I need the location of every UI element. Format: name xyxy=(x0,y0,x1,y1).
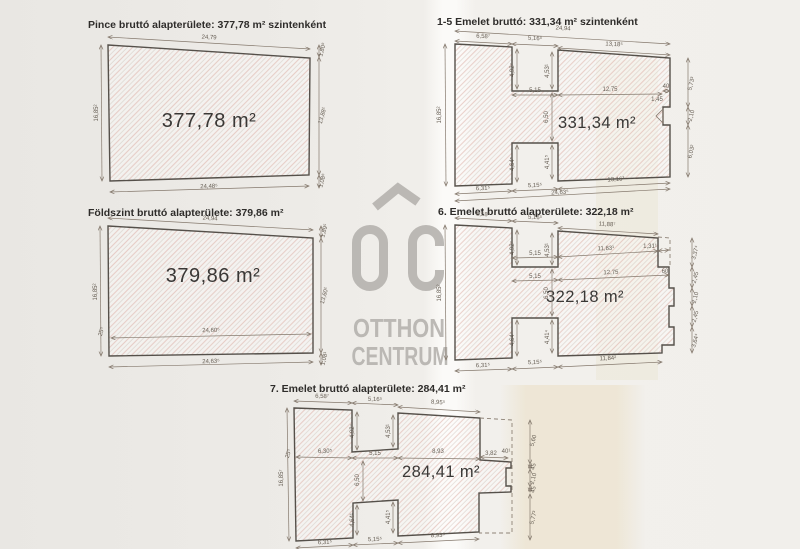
plan-pince-area: 377,78 m² xyxy=(162,110,257,132)
dim-line xyxy=(398,539,479,543)
dim-label: 4,92⁴ xyxy=(509,62,516,77)
dim-label: 4,41⁵ xyxy=(544,154,551,169)
scanned-floorplan-page: OTTHON CENTRUM Pince bruttó alapterülete… xyxy=(0,0,800,549)
dim-label: 5,15⁵ xyxy=(528,359,543,367)
plan-emelet-1-5-area: 331,34 m² xyxy=(558,114,636,132)
dim-label: 12,75 xyxy=(602,87,618,93)
dim-label: 6,31⁵ xyxy=(476,185,491,193)
dim-label: 8,93⁵ xyxy=(431,532,446,540)
dim-line xyxy=(558,183,670,189)
dim-label: 2,10 xyxy=(688,109,697,122)
plan-emelet-6: 6. Emelet bruttó alapterülete: 322,18 m²… xyxy=(437,206,701,371)
dim-label: 13,88¹ xyxy=(318,107,328,125)
dim-label: 6,03² xyxy=(687,144,696,159)
dim-line xyxy=(445,225,446,360)
dim-label: 6,50 xyxy=(355,474,361,486)
dim-line xyxy=(512,257,558,258)
dim-label: 24,94 xyxy=(202,216,218,223)
dim-label: 6,50 xyxy=(544,287,550,299)
dim-label: 5,15 xyxy=(529,274,541,280)
dim-label: 2,45 xyxy=(692,271,701,284)
dim-label: 13,18⁵ xyxy=(605,40,623,48)
dim-label: 16,85² xyxy=(437,284,443,301)
dim-label: 11,88⁷ xyxy=(599,221,616,229)
dim-label: 5,16⁵ xyxy=(528,214,543,222)
dim-line xyxy=(294,401,352,403)
dim-label: 16,85² xyxy=(94,104,100,121)
plan-emelet-7-title: 7. Emelet bruttó alapterülete: 284,41 m² xyxy=(270,383,466,395)
dim-label: 4,64¹ xyxy=(350,513,356,527)
dim-line xyxy=(287,408,289,541)
dim-line xyxy=(558,362,662,367)
dim-label: 6,31⁵ xyxy=(318,539,333,547)
dim-label: 3,82 xyxy=(485,451,497,457)
dim-label: 45 xyxy=(530,485,538,494)
dim-line xyxy=(512,221,558,223)
dim-label: 16,85² xyxy=(93,283,99,300)
floorplan-drawing: OTTHON CENTRUM Pince bruttó alapterülete… xyxy=(0,0,800,549)
plan-emelet-6-area: 322,18 m² xyxy=(546,288,624,306)
dim-label: 6,30⁵ xyxy=(318,448,333,455)
dim-line xyxy=(455,369,512,371)
dim-line xyxy=(480,457,508,458)
dim-label: 8,93 xyxy=(432,449,444,455)
dim-label: 8,95⁵ xyxy=(431,399,446,407)
dim-label: 4,41⁴ xyxy=(544,329,551,344)
dim-label: 1,31¹ xyxy=(643,244,657,250)
dim-label: 6,58⁷ xyxy=(315,393,329,400)
dim-label: 1,08¹ xyxy=(320,351,329,366)
plan-emelet-1-5: 1-5 Emelet bruttó: 331,34 m² szintenként… xyxy=(437,16,697,201)
dim-label: 4,64⁴ xyxy=(509,331,516,346)
dim-label: 24,48⁵ xyxy=(200,183,218,191)
dim-line xyxy=(353,543,398,545)
watermark-letter-c xyxy=(413,230,440,287)
watermark-roof-icon xyxy=(375,188,418,207)
dim-label: 5,77³ xyxy=(529,510,538,525)
dim-label: 5,15 xyxy=(529,251,541,257)
plan-foldszint-area: 379,86 m² xyxy=(166,265,261,287)
dim-label: 24,79 xyxy=(201,35,217,42)
dim-label: 45 xyxy=(530,462,538,471)
dim-label: 5,16⁵ xyxy=(528,35,543,43)
dim-label: 6,31⁵ xyxy=(476,362,491,370)
dim-label: 4,53¹ xyxy=(386,424,392,438)
dim-line xyxy=(398,407,480,412)
dim-line xyxy=(445,44,446,186)
dim-label: 25⁵ xyxy=(97,326,106,337)
watermark-line2: CENTRUM xyxy=(352,341,449,371)
dim-label: 2,10 xyxy=(530,472,539,485)
dim-line xyxy=(101,45,102,181)
watermark-letter-o xyxy=(357,230,384,287)
dim-label: 13,60¹ xyxy=(320,287,330,305)
dim-label: 24,63⁵ xyxy=(551,188,569,196)
dim-line xyxy=(455,218,512,221)
dim-label: 4,53¹ xyxy=(545,243,551,257)
dim-label: 5,73³ xyxy=(687,76,696,91)
dim-label: 5,15 xyxy=(529,88,541,94)
dim-label: 4,92⁴ xyxy=(349,423,356,438)
plan-emelet-7: 7. Emelet bruttó alapterülete: 284,41 m²… xyxy=(270,383,539,548)
plan-emelet-7-area: 284,41 m² xyxy=(402,463,480,481)
dim-line xyxy=(352,403,398,405)
dim-label: 13,16³ xyxy=(607,177,624,184)
dim-label: 4,41⁵ xyxy=(385,509,392,524)
dim-label: 4,92⁴ xyxy=(509,240,516,255)
dim-label: 11,83¹ xyxy=(598,246,615,253)
plan-pince: Pince bruttó alapterülete: 377,78 m² szi… xyxy=(88,19,328,192)
dim-label: 4,64⁵ xyxy=(509,156,516,171)
watermark-line1: OTTHON xyxy=(353,313,445,343)
plan-foldszint: Földszint bruttó alapterülete: 379,86 m²… xyxy=(88,207,330,367)
dim-line xyxy=(512,44,558,46)
plan-foldszint-title: Földszint bruttó alapterülete: 379,86 m² xyxy=(88,207,284,219)
dim-label: 2,10 xyxy=(692,291,701,304)
dim-label: 6,50 xyxy=(544,111,550,123)
dim-label: 6,58⁷ xyxy=(476,33,490,41)
dim-label: 24,60⁵ xyxy=(202,327,220,334)
dim-label: 12,75 xyxy=(603,270,619,277)
dim-label: 16,85⁷ xyxy=(278,469,285,486)
dim-label: 5,16⁵ xyxy=(368,396,383,404)
dim-line xyxy=(512,367,558,369)
dim-label: 11,84² xyxy=(600,356,617,363)
dim-label: 5,60 xyxy=(530,434,539,447)
dim-label: 1,45 xyxy=(651,97,663,103)
plan-pince-title: Pince bruttó alapterülete: 377,78 m² szi… xyxy=(88,19,327,31)
dim-label: 40¹ xyxy=(502,449,511,455)
dim-label: 25⁵ xyxy=(284,448,293,459)
plan-foldszint-outline xyxy=(108,226,313,356)
reference-outline-dashed xyxy=(658,237,670,266)
dim-line xyxy=(455,41,512,44)
dim-line xyxy=(658,250,669,251)
dim-label: 24,63⁵ xyxy=(202,358,220,365)
plan-emelet-1-5-title: 1-5 Emelet bruttó: 331,34 m² szintenként xyxy=(437,16,638,28)
watermark: OTTHON CENTRUM xyxy=(352,188,449,371)
dim-label: 40 xyxy=(663,84,670,90)
dim-label: 16,85² xyxy=(437,106,443,123)
dim-label: 5,15⁵ xyxy=(368,536,383,544)
dim-label: 5,15⁵ xyxy=(528,182,543,190)
dim-label: 60 xyxy=(662,269,669,275)
dim-label: 5,15 xyxy=(369,451,381,457)
dim-label: 4,53¹ xyxy=(545,64,551,78)
dim-label: 2,45 xyxy=(692,310,701,323)
dim-label: 24,94 xyxy=(555,26,571,33)
dim-label: 6,58⁴ xyxy=(476,211,491,219)
